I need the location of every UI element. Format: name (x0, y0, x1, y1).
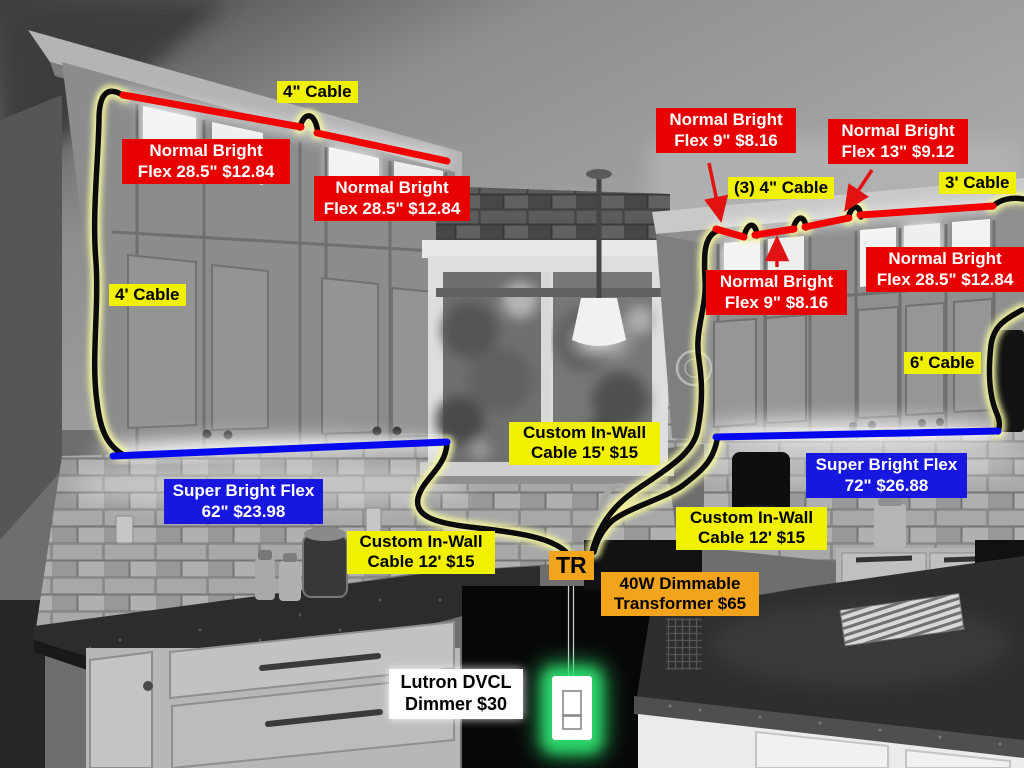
label-4ft-cable: 4' Cable (109, 284, 186, 306)
label-3ft-cable: 3' Cable (939, 172, 1016, 194)
kitchen-photo-background (0, 0, 1024, 768)
label-normal-bright-flex-28-right: Normal Bright Flex 28.5" $12.84 (866, 247, 1024, 292)
label-line: Custom In-Wall (515, 423, 654, 443)
label-line: Lutron DVCL (397, 672, 515, 694)
label-normal-bright-flex-9-bottom: Normal Bright Flex 9" $8.16 (706, 270, 847, 315)
label-inwall-cable-12-right: Custom In-Wall Cable 12' $15 (676, 507, 827, 550)
label-line: Normal Bright (660, 110, 792, 131)
label-transformer-tr: TR (549, 551, 594, 580)
dimmer-switch-graphic (535, 660, 609, 760)
label-line: Cable 12' $15 (353, 552, 489, 572)
label-line: Flex 9" $8.16 (710, 293, 843, 314)
label-line: Normal Bright (832, 121, 964, 142)
label-line: Flex 9" $8.16 (660, 131, 792, 152)
label-line: Cable 15' $15 (515, 443, 654, 463)
label-line: Transformer $65 (606, 594, 754, 614)
label-line: Super Bright Flex (168, 481, 319, 502)
label-line: 72" $26.88 (810, 476, 963, 497)
label-line: Flex 28.5" $12.84 (870, 270, 1020, 291)
label-line: 62" $23.98 (168, 502, 319, 523)
hanging-towel (666, 618, 702, 670)
label-super-bright-flex-72: Super Bright Flex 72" $26.88 (806, 453, 967, 498)
label-inwall-cable-12-left: Custom In-Wall Cable 12' $15 (347, 531, 495, 574)
label-3x-4in-cable: (3) 4" Cable (728, 177, 834, 199)
annotated-kitchen-lighting-plan: 4" Cable Normal Bright Flex 28.5" $12.84… (0, 0, 1024, 768)
label-line: Normal Bright (126, 141, 286, 162)
label-4in-cable: 4" Cable (277, 81, 358, 103)
label-normal-bright-flex-28-left-b: Normal Bright Flex 28.5" $12.84 (314, 176, 470, 221)
label-line: Flex 28.5" $12.84 (126, 162, 286, 183)
label-normal-bright-flex-13: Normal Bright Flex 13" $9.12 (828, 119, 968, 164)
label-line: Flex 13" $9.12 (832, 142, 964, 163)
label-super-bright-flex-62: Super Bright Flex 62" $23.98 (164, 479, 323, 524)
label-line: Custom In-Wall (682, 508, 821, 528)
label-line: Normal Bright (870, 249, 1020, 270)
label-line: Dimmer $30 (397, 694, 515, 716)
canister (874, 504, 906, 548)
label-normal-bright-flex-9-top: Normal Bright Flex 9" $8.16 (656, 108, 796, 153)
label-6ft-cable: 6' Cable (904, 352, 981, 374)
label-lutron-dimmer: Lutron DVCL Dimmer $30 (389, 669, 523, 719)
label-line: Normal Bright (318, 178, 466, 199)
label-40w-transformer: 40W Dimmable Transformer $65 (601, 572, 759, 616)
label-line: Super Bright Flex (810, 455, 963, 476)
label-line: Normal Bright (710, 272, 843, 293)
label-normal-bright-flex-28-left-a: Normal Bright Flex 28.5" $12.84 (122, 139, 290, 184)
label-line: Flex 28.5" $12.84 (318, 199, 466, 220)
label-line: Custom In-Wall (353, 532, 489, 552)
label-line: 40W Dimmable (606, 574, 754, 594)
label-inwall-cable-15: Custom In-Wall Cable 15' $15 (509, 422, 660, 465)
label-line: Cable 12' $15 (682, 528, 821, 548)
